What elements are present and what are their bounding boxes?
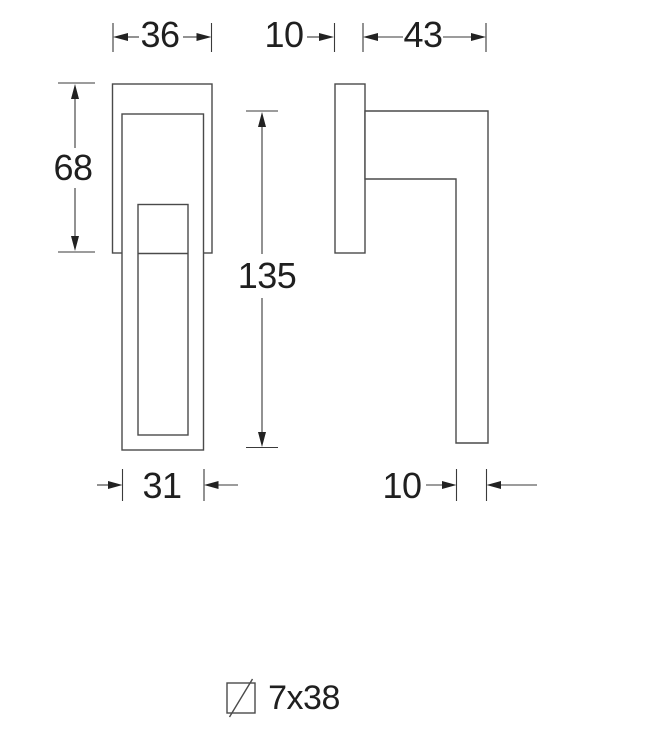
front-view [113,84,213,450]
lever-handle-side [365,111,488,443]
arrow-left-icon [487,481,502,489]
arrow-right-icon [108,481,123,489]
rose-thickness-dimension-label: 10 [264,17,303,53]
technical-drawing-canvas: 36 10 43 68 135 31 10 7x38 [0,0,647,733]
rose-plate-side [335,84,365,253]
handle-length-dimension-label: 135 [238,258,297,294]
rose-width-dimension-label: 36 [140,17,179,53]
handle-grip-front [138,205,188,436]
arrow-left-icon [204,481,219,489]
lever-thickness-dimension-label: 10 [382,468,421,504]
arrow-right-icon [197,33,212,41]
arrow-right-icon [442,481,457,489]
arrow-down-icon [258,432,266,447]
arrow-right-icon [319,33,334,41]
handle-width-dimension-label: 31 [142,468,181,504]
spindle-square-icon [227,679,255,717]
arrow-down-icon [71,236,79,251]
drawing-lines [0,0,647,733]
arrow-left-icon [363,33,378,41]
dim-lever-thickness [426,469,537,501]
spindle-size-label: 7x38 [268,681,340,715]
arrow-right-icon [471,33,486,41]
dim-rose-thickness [307,23,363,52]
arrow-up-icon [258,112,266,127]
arrow-up-icon [71,84,79,99]
projection-dimension-label: 43 [403,17,442,53]
arrow-left-icon [113,33,128,41]
side-view [335,84,488,443]
rose-height-dimension-label: 68 [53,150,92,186]
